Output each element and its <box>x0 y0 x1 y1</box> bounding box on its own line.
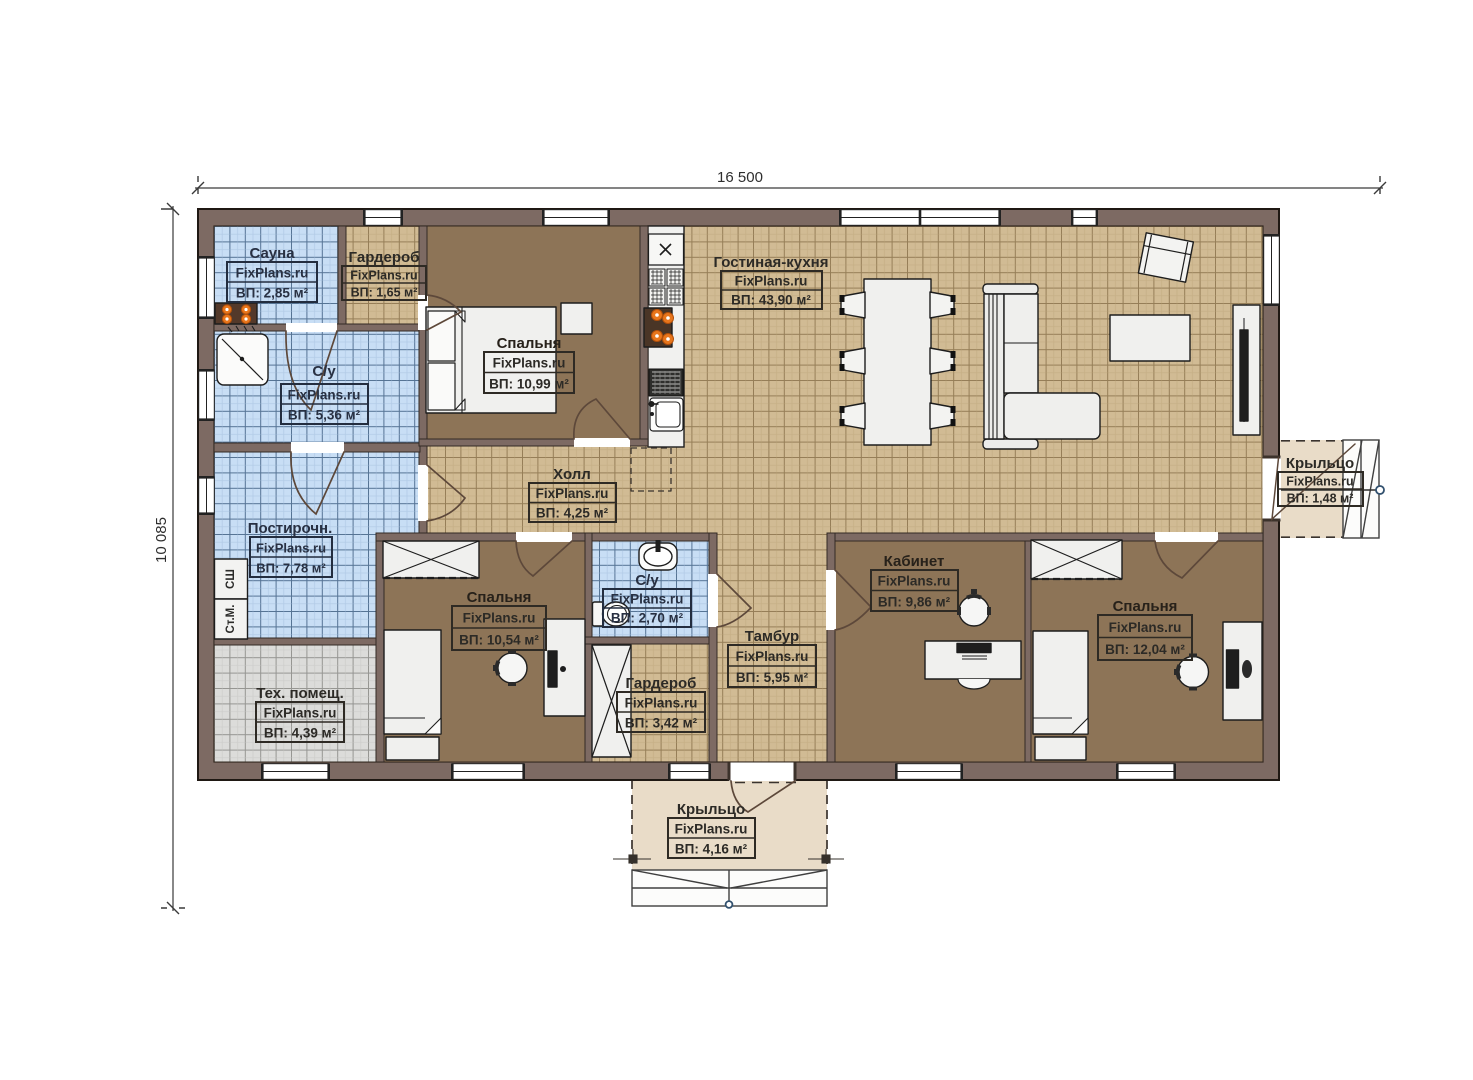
svg-text:ВП: 43,90 м²: ВП: 43,90 м² <box>731 293 811 308</box>
svg-text:Крыльцо: Крыльцо <box>1286 455 1354 472</box>
svg-text:ВП: 2,70 м²: ВП: 2,70 м² <box>611 611 684 626</box>
svg-text:FixPlans.ru: FixPlans.ru <box>463 611 536 626</box>
svg-text:Сауна: Сауна <box>249 245 295 262</box>
svg-text:ВП: 4,39 м²: ВП: 4,39 м² <box>264 726 337 741</box>
svg-text:ВП: 5,95 м²: ВП: 5,95 м² <box>736 670 809 685</box>
svg-text:FixPlans.ru: FixPlans.ru <box>288 388 361 403</box>
svg-text:Постирочн.: Постирочн. <box>248 520 333 537</box>
svg-text:Тех. помещ.: Тех. помещ. <box>256 685 344 702</box>
svg-text:FixPlans.ru: FixPlans.ru <box>1109 620 1182 635</box>
svg-text:ВП: 7,78 м²: ВП: 7,78 м² <box>256 561 326 576</box>
svg-text:ВП: 10,99 м²: ВП: 10,99 м² <box>489 377 569 392</box>
svg-text:FixPlans.ru: FixPlans.ru <box>493 356 566 371</box>
svg-text:ВП: 2,85 м²: ВП: 2,85 м² <box>236 286 309 301</box>
svg-text:Спальня: Спальня <box>1113 598 1178 615</box>
svg-text:Крыльцо: Крыльцо <box>677 801 745 818</box>
svg-text:ВП: 5,36 м²: ВП: 5,36 м² <box>288 408 361 423</box>
svg-text:Гардероб: Гардероб <box>349 249 420 266</box>
svg-text:FixPlans.ru: FixPlans.ru <box>1286 475 1353 489</box>
svg-text:FixPlans.ru: FixPlans.ru <box>675 822 748 837</box>
svg-text:ВП: 9,86 м²: ВП: 9,86 м² <box>878 595 951 610</box>
svg-text:ВП: 4,25 м²: ВП: 4,25 м² <box>536 506 609 521</box>
svg-text:Спальня: Спальня <box>467 589 532 606</box>
svg-text:FixPlans.ru: FixPlans.ru <box>611 592 684 607</box>
svg-text:FixPlans.ru: FixPlans.ru <box>236 266 309 281</box>
svg-text:Кабинет: Кабинет <box>884 553 945 570</box>
svg-text:Холл: Холл <box>553 466 591 483</box>
svg-text:Ст.М.: Ст.М. <box>225 605 237 634</box>
svg-text:ВП: 4,16 м²: ВП: 4,16 м² <box>675 842 748 857</box>
svg-text:ВП: 1,65 м²: ВП: 1,65 м² <box>351 286 418 300</box>
svg-text:Гардероб: Гардероб <box>626 675 697 692</box>
svg-text:FixPlans.ru: FixPlans.ru <box>625 696 698 711</box>
svg-text:10 085: 10 085 <box>153 517 170 563</box>
svg-text:Гостиная-кухня: Гостиная-кухня <box>714 254 829 271</box>
svg-text:FixPlans.ru: FixPlans.ru <box>536 486 609 501</box>
svg-text:FixPlans.ru: FixPlans.ru <box>350 269 417 283</box>
svg-text:СШ: СШ <box>225 569 237 589</box>
svg-text:ВП: 10,54 м²: ВП: 10,54 м² <box>459 633 539 648</box>
svg-text:ВП: 3,42 м²: ВП: 3,42 м² <box>625 716 698 731</box>
svg-text:Тамбур: Тамбур <box>745 628 799 645</box>
svg-text:FixPlans.ru: FixPlans.ru <box>878 574 951 589</box>
svg-text:16 500: 16 500 <box>717 169 763 186</box>
svg-text:ВП: 12,04 м²: ВП: 12,04 м² <box>1105 642 1185 657</box>
svg-text:С/у: С/у <box>635 572 659 589</box>
svg-text:С/у: С/у <box>312 363 336 380</box>
svg-text:ВП: 1,48 м²: ВП: 1,48 м² <box>1287 492 1354 506</box>
svg-text:FixPlans.ru: FixPlans.ru <box>256 541 326 556</box>
svg-text:FixPlans.ru: FixPlans.ru <box>264 706 337 721</box>
svg-text:FixPlans.ru: FixPlans.ru <box>735 274 808 289</box>
svg-text:Спальня: Спальня <box>497 335 562 352</box>
svg-text:FixPlans.ru: FixPlans.ru <box>736 649 809 664</box>
